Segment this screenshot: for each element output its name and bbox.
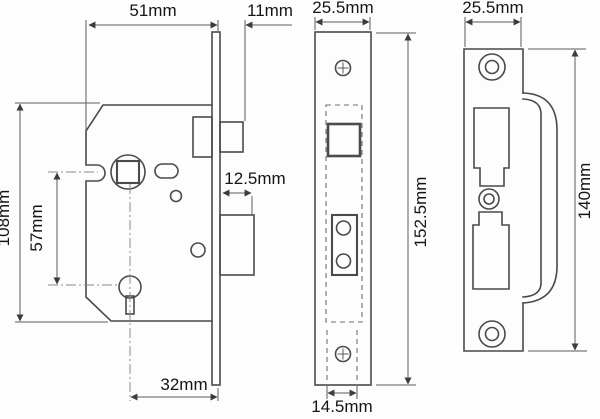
countersunk-hole-icon	[479, 321, 505, 347]
dim-label: 25.5mm	[462, 0, 523, 17]
mortice-lock-diagram: 51mm 11mm 108mm 57mm 12.5mm	[0, 0, 600, 419]
screw-hole	[486, 61, 499, 74]
dim-case-width: 51mm	[86, 1, 218, 131]
countersunk-hole-icon	[479, 189, 499, 209]
dim-deadbolt-throw: 12.5mm	[223, 169, 286, 214]
dim-case-height: 108mm	[0, 103, 108, 322]
dim-backset: 32mm	[131, 375, 218, 401]
technical-drawing-page: 51mm 11mm 108mm 57mm 12.5mm	[0, 0, 600, 419]
screw-hole	[486, 328, 499, 341]
dim-label: 108mm	[0, 190, 13, 247]
fixing-hole	[191, 243, 205, 257]
strike-lip-inner	[523, 99, 541, 297]
dim-label: 25.5mm	[312, 0, 373, 17]
deadbolt-cutout	[473, 212, 509, 289]
countersunk-hole-icon	[479, 54, 505, 80]
screw-hole	[484, 194, 494, 204]
dim-case-width-front: 14.5mm	[311, 386, 372, 416]
oval-slot-hole	[155, 164, 178, 178]
faceplate-edge	[212, 32, 220, 385]
small-hole	[171, 191, 182, 202]
screw-head-icon	[336, 61, 351, 76]
countersink	[479, 189, 499, 209]
dim-faceplate-height: 152.5mm	[376, 33, 430, 385]
hidden-case-outline	[326, 105, 362, 322]
deadbolt-face-plate	[332, 215, 357, 275]
dim-latch-projection: 11mm	[245, 1, 293, 121]
dim-label: 57mm	[27, 204, 46, 251]
dim-label: 51mm	[129, 1, 176, 20]
dim-label: 14.5mm	[311, 397, 372, 416]
strike-lip-outer	[523, 93, 557, 303]
dim-label: 12.5mm	[224, 169, 285, 188]
faceplate-view: 25.5mm 152.5mm 14.5mm	[311, 0, 430, 416]
faceplate-front	[315, 32, 371, 385]
dim-strike-height: 140mm	[528, 49, 594, 351]
dim-centres: 57mm	[27, 173, 57, 284]
latch-bolt-tip	[220, 122, 243, 152]
latch-bolt-inner	[193, 117, 212, 157]
screw-head-icon	[336, 347, 351, 362]
latch-bolt-face	[328, 124, 360, 156]
deadbolt-hole	[337, 254, 351, 268]
dim-strike-width: 25.5mm	[462, 0, 523, 47]
lock-body-view: 51mm 11mm 108mm 57mm 12.5mm	[0, 1, 293, 401]
dim-label: 140mm	[575, 163, 594, 220]
spindle-square-hole	[117, 161, 139, 183]
dim-label: 152.5mm	[411, 177, 430, 248]
strike-plate-view: 25.5mm 140mm	[462, 0, 594, 351]
deadbolt-tip	[220, 215, 254, 275]
countersink	[479, 54, 505, 80]
countersink	[479, 321, 505, 347]
deadbolt-hole	[337, 221, 351, 235]
dim-label: 11mm	[247, 1, 293, 20]
latch-cutout	[474, 108, 509, 186]
dim-faceplate-width: 25.5mm	[312, 0, 373, 30]
deadbolt-face	[332, 215, 357, 275]
dim-label: 32mm	[160, 375, 207, 394]
